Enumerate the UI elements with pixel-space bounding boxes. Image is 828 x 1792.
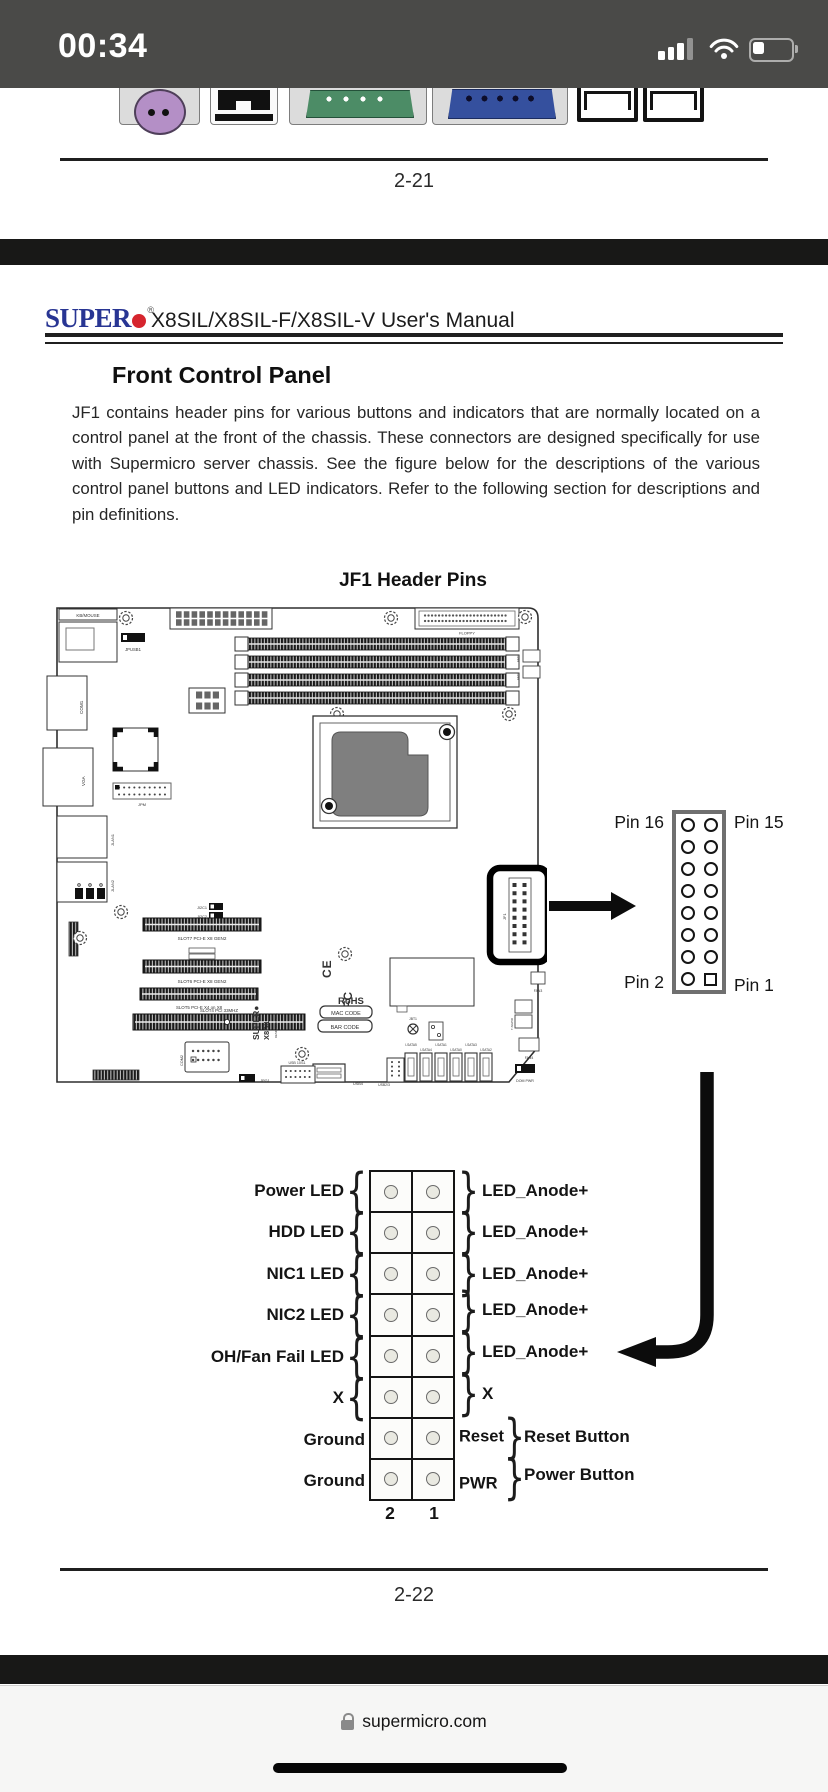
svg-text:MAC CODE: MAC CODE (331, 1011, 361, 1017)
svg-text:JLAN1: JLAN1 (110, 833, 115, 846)
jf1-highlight: JF1 (490, 868, 547, 962)
page-rule-bottom (60, 1568, 768, 1571)
lan-port-icon (643, 84, 704, 122)
battery-icon (749, 38, 794, 62)
url-text: supermicro.com (362, 1711, 486, 1732)
motherboard-diagram: KB/MOUSE COM1 VGA JLAN1 JLAN2 JPUSB1 (41, 606, 547, 1086)
svg-text:DESIGNED IN USA: DESIGNED IN USA (274, 1013, 278, 1038)
svg-text:JPM: JPM (138, 802, 146, 807)
svg-text:FLOPPY: FLOPPY (459, 631, 475, 636)
cellular-signal-icon (658, 36, 702, 62)
status-time: 00:34 (58, 27, 147, 66)
pin-header-box (672, 810, 726, 994)
svg-text:I-SATA0: I-SATA0 (450, 1048, 462, 1052)
header-to-table-arrow (655, 1072, 707, 1352)
row-label-x-right: X (482, 1384, 493, 1404)
svg-text:USB4: USB4 (353, 1082, 363, 1086)
pin2-label: Pin 2 (560, 972, 664, 993)
svg-text:USB2/3: USB2/3 (378, 1083, 390, 1086)
svg-text:SLOT6 PCI-E X8 GEN2: SLOT6 PCI-E X8 GEN2 (178, 979, 227, 984)
svg-text:I-SATA2: I-SATA2 (480, 1048, 492, 1052)
svg-text:CE: CE (320, 959, 334, 978)
svg-text:I-SATA3: I-SATA3 (465, 1043, 477, 1047)
page-separator-bottom (0, 1655, 828, 1684)
pin-grid (369, 1170, 455, 1501)
svg-text:RoHS: RoHS (338, 996, 364, 1007)
svg-text:I-SATA5: I-SATA5 (405, 1043, 417, 1047)
header-rule-thick (45, 333, 783, 337)
row-label-nic1-led: NIC1 LED (0, 1264, 344, 1284)
section-heading: Front Control Panel (112, 362, 331, 389)
page-separator-top (0, 239, 828, 265)
svg-text:I-SATA1: I-SATA1 (435, 1043, 447, 1047)
row-label-nic2-led: NIC2 LED (0, 1305, 344, 1325)
svg-text:I-SATA4: I-SATA4 (420, 1048, 432, 1052)
svg-text:JBT1: JBT1 (409, 1017, 417, 1021)
column-number-1: 1 (413, 1503, 455, 1524)
ps2-mouse-port-icon (119, 84, 200, 125)
pin15-label: Pin 15 (734, 812, 784, 833)
svg-text:FAN2: FAN2 (516, 672, 520, 680)
svg-text:SLOT4 PCI 33MHZ: SLOT4 PCI 33MHZ (200, 1008, 238, 1013)
status-bar: 00:34 (0, 0, 828, 88)
supermicro-logo: SUPER (45, 303, 131, 334)
header-rule-thin (45, 342, 783, 344)
url-bar[interactable]: supermicro.com (0, 1711, 828, 1732)
row-label-ground-2: Ground (0, 1471, 365, 1491)
lock-icon (341, 1720, 354, 1730)
figure-title: JF1 Header Pins (113, 570, 713, 592)
svg-text:JI2C1: JI2C1 (197, 906, 207, 910)
page-rule-top (60, 158, 768, 161)
pin-label-reset: Reset (459, 1428, 504, 1447)
svg-text:FAN4: FAN4 (525, 1056, 534, 1060)
row-label-oh-fan-fail-led: OH/Fan Fail LED (0, 1347, 344, 1367)
pin1-label: Pin 1 (734, 975, 774, 996)
home-indicator[interactable] (273, 1763, 567, 1773)
row-label-power-button: Power Button (524, 1465, 635, 1485)
pin1-square-pin (704, 973, 717, 986)
row-label-reset-button: Reset Button (524, 1427, 630, 1447)
browser-bottom-bar: supermicro.com (0, 1685, 828, 1792)
svg-text:FAN1: FAN1 (516, 654, 520, 662)
row-label-hdd-led: HDD LED (0, 1222, 344, 1242)
svg-text:JPUSB1: JPUSB1 (125, 647, 141, 652)
svg-text:VGA: VGA (81, 775, 86, 786)
svg-text:SUPER●: SUPER● (251, 1006, 261, 1040)
lan-port-icon (577, 84, 638, 122)
column-number-2: 2 (369, 1503, 411, 1524)
row-label-ground-1: Ground (0, 1430, 365, 1450)
svg-text:X8SIL: X8SIL (262, 1019, 271, 1040)
pin16-label: Pin 16 (560, 812, 664, 833)
ps2-ring (134, 89, 186, 135)
parallel-port-icon (210, 84, 278, 125)
svg-text:FAN3: FAN3 (534, 989, 543, 993)
svg-text:COM1: COM1 (79, 700, 84, 714)
manual-title: X8SIL/X8SIL-F/X8SIL-V User's Manual (151, 309, 515, 333)
svg-text:T-SGPIO: T-SGPIO (510, 1017, 514, 1030)
jf1-to-header-arrow (549, 901, 612, 911)
svg-text:JLAN2: JLAN2 (110, 879, 115, 892)
svg-text:USB 10/11: USB 10/11 (288, 1061, 305, 1065)
svg-text:SLOT7 PCI-E X8 GEN2: SLOT7 PCI-E X8 GEN2 (178, 936, 227, 941)
section-body: JF1 contains header pins for various but… (72, 400, 760, 527)
supermicro-logo-dot-icon: ® (132, 314, 146, 328)
vga-port-icon (432, 84, 568, 125)
row-label-x-left: X (0, 1388, 344, 1408)
kb-mouse-label: KB/MOUSE (76, 613, 99, 618)
svg-text:DOM PWR: DOM PWR (516, 1079, 534, 1083)
pin-label-pwr: PWR (459, 1475, 498, 1494)
svg-text:COM2: COM2 (180, 1055, 184, 1066)
page-number-2-22: 2-22 (0, 1584, 828, 1607)
row-label-power-led: Power LED (0, 1181, 344, 1201)
svg-text:JF1: JF1 (502, 913, 507, 920)
serial-com-port-icon (289, 84, 427, 125)
manual-header: SUPER®X8SIL/X8SIL-F/X8SIL-V User's Manua… (45, 303, 515, 333)
cpu-socket (313, 716, 457, 828)
iphone-screen: 2-21 SUPER®X8SIL/X8SIL-F/X8SIL-V User's … (0, 0, 828, 1792)
svg-text:JPG1: JPG1 (260, 1079, 270, 1083)
svg-text:BAR CODE: BAR CODE (331, 1025, 360, 1031)
wifi-icon (708, 34, 740, 60)
page-number-2-21: 2-21 (0, 170, 828, 193)
